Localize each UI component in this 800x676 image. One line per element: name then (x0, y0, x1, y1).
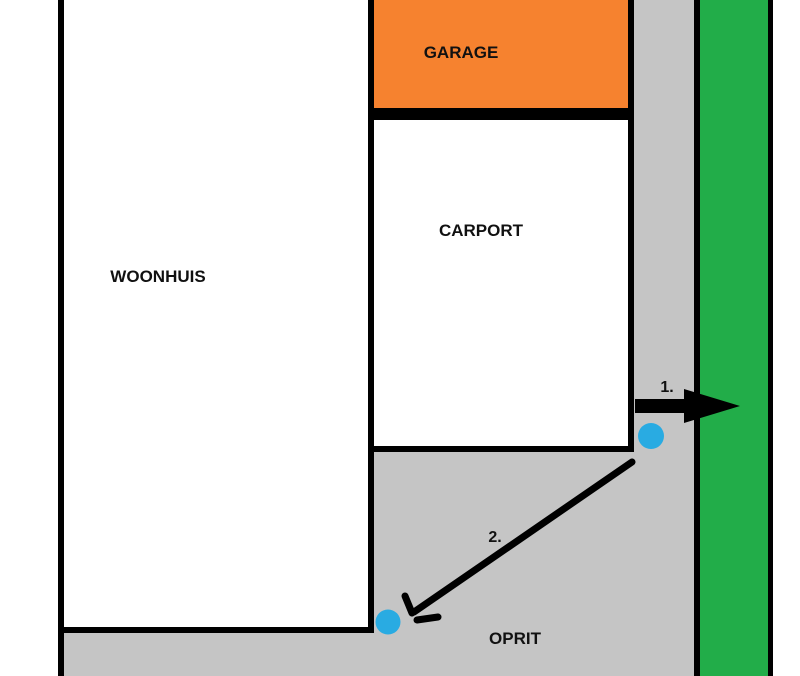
step-2-label: 2. (480, 529, 510, 547)
annotation-overlay (0, 0, 800, 676)
marker-dot-1 (638, 423, 664, 449)
arrow-2-head-lower (417, 617, 438, 620)
arrow-2-shaft (414, 462, 632, 612)
driveway-label: OPRIT (465, 629, 565, 649)
marker-dot-2 (376, 610, 401, 635)
carport-label: CARPORT (431, 221, 531, 241)
step-1-label: 1. (652, 379, 682, 397)
arrow-2-head-upper (405, 596, 412, 613)
garage-label: GARAGE (411, 43, 511, 63)
site-plan-diagram: WOONHUIS GARAGE CARPORT OPRIT 1. 2. (0, 0, 800, 676)
house-label: WOONHUIS (103, 267, 213, 287)
arrow-1-icon (635, 389, 740, 423)
